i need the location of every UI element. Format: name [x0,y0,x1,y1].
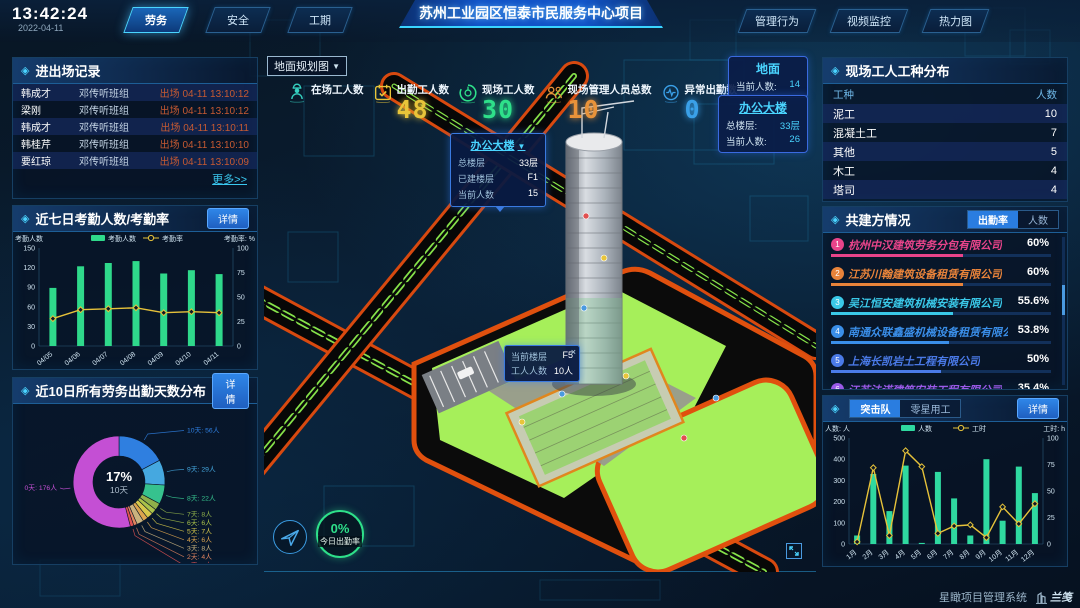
diamond-icon: ◈ [831,213,839,226]
svg-text:考勤率: %: 考勤率: % [224,234,255,243]
panel-header: ◈ 共建方情况 出勤率 人数 [823,207,1067,233]
svg-text:6月: 6月 [926,548,940,561]
svg-text:8月: 8月 [958,548,972,561]
panel-header: ◈ 进出场记录 [13,58,257,84]
svg-text:5月: 5月 [910,548,924,561]
rank-badge: 6 [831,383,844,389]
ground-card[interactable]: 地面 当前人数:14 [728,56,808,98]
panel-header: ◈ 近七日考勤人数/考勤率 详情 [13,206,257,232]
svg-text:工时: 工时 [972,424,986,433]
date-text: 2022-04-11 [12,24,88,34]
svg-text:8天: 22人: 8天: 22人 [187,495,216,503]
svg-text:9月: 9月 [974,548,988,561]
diamond-icon: ◈ [831,64,839,77]
svg-text:75: 75 [1047,462,1055,469]
svg-text:04/10: 04/10 [175,351,193,367]
partner-row[interactable]: 2 江苏川翰建筑设备租赁有限公司 60% [831,266,1057,295]
svg-text:50: 50 [1047,489,1055,496]
tab-safety[interactable]: 安全 [205,7,270,33]
svg-text:考勤人数: 考勤人数 [15,234,43,243]
panel-header: ◈ 现场工人工种分布 [823,58,1067,84]
diamond-icon: ◈ [21,384,29,397]
svg-text:0: 0 [237,344,241,351]
footer: 星瞰项目管理系统 兰笺 [939,589,1072,605]
calendar-icon [372,82,394,109]
svg-text:60: 60 [27,304,35,311]
record-row[interactable]: 韩成才 邓传听班组 出场 04-11 13:10:11 [13,118,257,135]
svg-text:12月: 12月 [1020,548,1037,563]
chevron-down-icon: ▼ [518,142,526,151]
svg-text:90: 90 [27,285,35,292]
worker-icon [286,82,308,109]
rank-badge: 4 [831,325,844,338]
record-list: 韩成才 邓传听班组 出场 04-11 13:10:12 梁刚 邓传听班组 出场 … [13,84,257,169]
svg-text:10月: 10月 [987,548,1004,563]
floor-tooltip: × 当前楼层F5 工人人数10人 [504,345,580,382]
panel-header: ◈ 近10日所有劳务出勤天数分布 详情 [13,378,257,404]
svg-text:17%: 17% [106,469,132,484]
svg-text:04/06: 04/06 [64,351,82,367]
panel-7day-attendance: ◈ 近七日考勤人数/考勤率 详情 03060901201500255075100… [12,205,258,370]
svg-text:04/11: 04/11 [203,351,221,367]
rank-badge: 5 [831,354,844,367]
table-row[interactable]: 其他5 [823,142,1067,161]
primary-tabs: 劳务 安全 工期 [128,7,348,33]
svg-text:5天: 7人: 5天: 7人 [187,527,212,535]
svg-text:3天: 8人: 3天: 8人 [187,544,212,552]
record-row[interactable]: 韩桂芹 邓传听班组 出场 04-11 13:10:10 [13,135,257,152]
svg-text:1月: 1月 [845,548,859,561]
svg-text:人数: 人: 人数: 人 [825,424,850,433]
map-layer-select[interactable]: 地面规划图 ▼ [267,56,347,76]
svg-text:0: 0 [31,344,35,351]
tab-headcount[interactable]: 人数 [1018,211,1058,228]
partner-row[interactable]: 1 杭州中汉建筑劳务分包有限公司 60% [831,237,1057,266]
svg-text:9天: 29人: 9天: 29人 [187,465,216,473]
pulse-icon [660,82,682,109]
table-row[interactable]: 木工4 [823,161,1067,180]
svg-text:10天: 56人: 10天: 56人 [187,427,220,435]
secondary-tabs: 管理行为 视频监控 热力图 [742,9,985,33]
chevron-down-icon: ▼ [332,62,340,71]
svg-text:0天: 176人: 0天: 176人 [25,484,58,492]
partners-tabs: 出勤率 人数 [967,210,1059,229]
tab-management-behavior[interactable]: 管理行为 [738,9,817,33]
attendance-chart[interactable]: 0306090120150025507510004/0504/0604/0704… [13,232,257,368]
compass-icon[interactable] [273,520,307,554]
top-bar: 13:42:24 2022-04-11 劳务 安全 工期 苏州工业园区恒泰市民服… [0,0,1080,42]
tab-assault-team[interactable]: 突击队 [850,400,900,417]
svg-text:100: 100 [237,246,249,253]
fullscreen-icon[interactable] [786,543,802,559]
building-icon [1036,591,1047,604]
svg-text:人数: 人数 [918,424,932,433]
svg-text:考勤率: 考勤率 [162,234,183,243]
panel-entry-exit-records: ◈ 进出场记录 韩成才 邓传听班组 出场 04-11 13:10:12 梁刚 邓… [12,57,258,199]
squad-chart[interactable]: 010020030040050002550751001月2月3月4月5月6月7月… [823,422,1067,566]
building-popup: 办公大楼▼ 总楼层33层 已建楼层F1 当前人数15 [450,133,546,207]
table-header: 工种人数 [823,84,1067,104]
today-attendance-ring: 0% 今日出勤率 [316,510,364,558]
svg-text:200: 200 [833,499,845,506]
table-row[interactable]: 塔司4 [823,180,1067,199]
svg-text:2天: 4人: 2天: 4人 [187,553,212,561]
panel-title: 现场工人工种分布 [845,61,949,80]
panel-partners: ◈ 共建方情况 出勤率 人数 1 杭州中汉建筑劳务分包有限公司 60% 2 江苏… [822,206,1068,390]
svg-text:04/07: 04/07 [91,351,109,367]
rank-badge: 1 [831,238,844,251]
svg-text:150: 150 [23,246,35,253]
partner-row[interactable]: 4 南通众联鑫盛机械设备租赁有限公司 53.8% [831,324,1057,353]
office-tower-card[interactable]: 办公大楼 总楼层:33层 当前人数:26 [718,95,808,153]
diamond-icon: ◈ [21,212,29,225]
panel-title: 近七日考勤人数/考勤率 [35,209,169,228]
svg-text:04/08: 04/08 [119,351,137,367]
time-text: 13:42:24 [12,5,88,24]
rank-badge: 3 [831,296,844,309]
trades-table: 泥工10 混凝土工7 其他5 木工4 塔司4 [823,104,1067,199]
svg-text:工时: h: 工时: h [1043,424,1065,433]
brand-logo: 兰笺 [1036,589,1072,605]
svg-text:2月: 2月 [861,548,875,561]
svg-text:7月: 7月 [942,548,956,561]
tab-video-monitor[interactable]: 视频监控 [830,9,909,33]
svg-text:3月: 3月 [877,548,891,561]
detail-button[interactable]: 详情 [207,208,249,229]
partner-row[interactable]: 5 上海长凯岩土工程有限公司 50% [831,353,1057,382]
record-row[interactable]: 梁刚 邓传听班组 出场 04-11 13:10:12 [13,101,257,118]
svg-text:100: 100 [1047,436,1059,443]
rank-badge: 2 [831,267,844,280]
panel-title: 共建方情况 [845,210,910,229]
svg-text:400: 400 [833,457,845,464]
panel-title: 近10日所有劳务出勤天数分布 [35,381,205,400]
svg-text:4天: 6人: 4天: 6人 [187,536,212,544]
stat-worker: 在场工人数 [286,82,364,123]
tab-schedule[interactable]: 工期 [287,7,352,33]
map-layer-value: 地面规划图 [274,58,329,74]
diamond-icon: ◈ [831,402,839,415]
svg-text:11月: 11月 [1004,548,1020,563]
page-title: 苏州工业园区恒泰市民服务中心项目 [399,0,663,28]
map-viewport[interactable]: 地面规划图 ▼ 在场工人数 出勤工人数 48 现场工人数 30 现场管理人员总数… [264,46,816,572]
svg-text:300: 300 [833,478,845,485]
diamond-icon: ◈ [21,64,29,77]
tab-labor[interactable]: 劳务 [123,7,188,33]
scrollbar-thumb[interactable] [1062,285,1065,315]
svg-text:04/05: 04/05 [36,351,54,367]
attendance-days-donut[interactable]: 10天: 56人9天: 29人8天: 22人7天: 8人6天: 6人5天: 7人… [13,404,257,563]
svg-text:50: 50 [237,295,245,302]
building-popup-title[interactable]: 办公大楼▼ [458,137,538,153]
scrollbar[interactable] [1062,237,1065,385]
record-row[interactable]: 要红琼 邓传听班组 出场 04-11 13:10:09 [13,152,257,169]
stat-people: 现场管理人员总数 10 [543,82,652,123]
tab-odd-jobs[interactable]: 零星用工 [900,400,960,417]
more-link[interactable]: 更多>> [13,169,257,189]
svg-text:0: 0 [1047,542,1051,549]
svg-text:10天: 10天 [110,485,128,495]
record-row[interactable]: 韩成才 邓传听班组 出场 04-11 13:10:12 [13,84,257,101]
svg-text:75: 75 [237,270,245,277]
detail-button[interactable]: 详情 [212,373,249,409]
detail-button[interactable]: 详情 [1017,398,1059,419]
gauge-icon [457,82,479,109]
svg-text:25: 25 [237,319,245,326]
partner-row[interactable]: 3 吴江恒安建筑机械安装有限公司 55.6% [831,295,1057,324]
svg-text:1天: 4人: 1天: 4人 [187,561,212,563]
table-row[interactable]: 混凝土工7 [823,123,1067,142]
partners-list: 1 杭州中汉建筑劳务分包有限公司 60% 2 江苏川翰建筑设备租赁有限公司 60… [823,233,1067,389]
panel-header: ◈ 突击队 零星用工 详情 [823,396,1067,422]
panel-worker-trades: ◈ 现场工人工种分布 工种人数 泥工10 混凝土工7 其他5 木工4 塔司4 [822,57,1068,202]
people-icon [543,82,565,109]
svg-text:500: 500 [833,436,845,443]
stat-calendar: 出勤工人数 48 [372,82,450,123]
svg-text:120: 120 [23,265,35,272]
svg-text:25: 25 [1047,515,1055,522]
svg-text:6天: 6人: 6天: 6人 [187,519,212,527]
partner-row[interactable]: 6 江苏法诺建筑安装工程有限公司 35.4% [831,382,1057,389]
svg-text:考勤人数: 考勤人数 [108,234,136,243]
panel-title: 进出场记录 [35,61,100,80]
tab-heatmap[interactable]: 热力图 [922,9,990,33]
svg-text:100: 100 [833,520,845,527]
table-row[interactable]: 泥工10 [823,104,1067,123]
squad-tabs: 突击队 零星用工 [849,399,961,418]
panel-squad: ◈ 突击队 零星用工 详情 01002003004005000255075100… [822,395,1068,567]
stat-gauge: 现场工人数 30 [457,82,535,123]
svg-text:4月: 4月 [893,548,907,561]
svg-text:30: 30 [27,324,35,331]
svg-text:7天: 8人: 7天: 8人 [187,510,212,518]
tab-attendance-rate[interactable]: 出勤率 [968,211,1018,228]
panel-attendance-days-distribution: ◈ 近10日所有劳务出勤天数分布 详情 10天: 56人9天: 29人8天: 2… [12,377,258,565]
close-icon[interactable]: × [571,347,576,357]
system-name: 星瞰项目管理系统 [939,589,1027,605]
clock: 13:42:24 2022-04-11 [12,5,88,34]
svg-text:0: 0 [841,542,845,549]
svg-text:04/09: 04/09 [147,351,165,367]
